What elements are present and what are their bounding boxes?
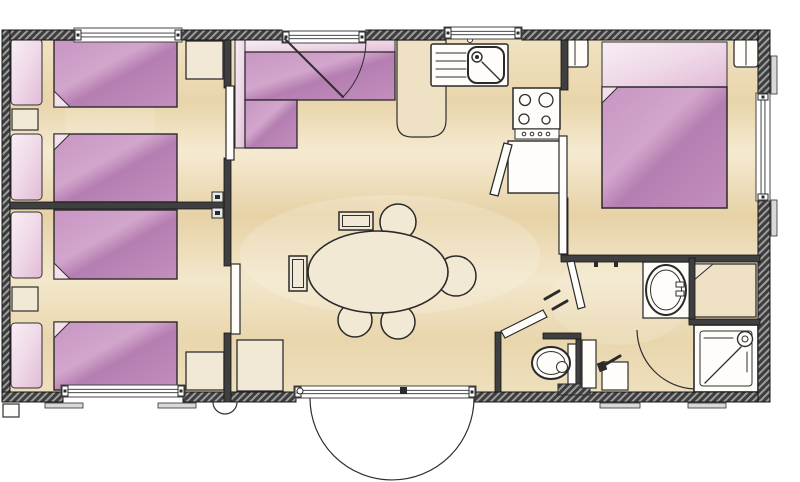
hob-burner-4 [542,116,550,124]
washbasin [646,265,686,315]
door-living-top-cap-dot-1 [361,36,364,39]
window-bedroom1-cap-dot-0 [77,34,80,37]
wall-bedrooms-living-top [224,40,231,88]
shower-head [738,332,753,347]
sliding-door-bedroom1 [226,86,234,160]
hob-knob-strip [515,129,559,139]
wall-wc-left [495,332,501,392]
window-bedroom1 [74,28,182,42]
sill-bottom-2 [158,403,196,408]
wall-bathroom-divider [689,258,695,322]
sill-bottom-3 [600,403,640,408]
hob-burner-1 [520,95,531,106]
window-kitchen [444,27,522,39]
window-kitchen-cap-dot-1 [517,32,520,35]
bed-single-4 [54,322,177,390]
bed-single-3-pillow [11,212,42,278]
dining-table [308,231,448,313]
sofa-backrest-left [235,40,245,148]
window-master-cap-dot-1 [762,196,765,199]
sliding-door-master [559,136,567,254]
nightstand-bedroom2 [12,287,38,311]
wall-right-top [758,30,770,93]
wardrobe-bedroom1 [186,41,223,79]
window-bedroom1-cap-dot-1 [177,34,180,37]
door-latch-bedroom1-dot [215,195,220,199]
patio-door-arc [310,398,474,480]
wall-bottom-1 [2,392,63,402]
floor-plan-drawing [0,0,800,482]
sofa-chaise [245,100,297,148]
wall-bottom-4 [474,392,758,402]
patio-door-handle [297,388,303,394]
wardrobe-bedroom2 [186,352,224,390]
bed-single-4-pillow [11,323,42,388]
wall-top-2 [180,30,282,40]
wall-top-4 [522,30,758,40]
door-living-top [282,31,366,43]
bed-single-1-pillow [11,39,42,105]
wall-top-3 [366,30,446,40]
hob-burner-3 [519,114,529,124]
window-master [756,93,770,201]
bed-single-1 [54,40,177,107]
bed-single-3 [54,210,177,279]
window-master-cap-dot-0 [762,96,765,99]
patio-door-latch [400,387,407,394]
sill-bottom-4 [688,403,726,408]
wall-bottom-2 [183,392,224,402]
hinge-mark-1 [594,262,598,267]
patio-door [294,386,476,398]
wardrobe-living [237,340,283,391]
wall-bedroom-divider [10,202,224,209]
kitchen-cabinet [508,141,561,193]
wall-bedrooms-living-mid [224,158,231,266]
wall-wc-top [543,333,581,339]
door-latch-bedroom2-dot [215,211,220,215]
washbasin-tap-2 [676,291,684,296]
patio-door-cap-dot-1 [471,391,474,394]
window-kitchen-cap-dot-0 [447,32,450,35]
toilet-flush [557,362,568,373]
sink-faucet-dot [475,55,479,59]
bed-single-2 [54,134,177,202]
sliding-door-bedroom2 [231,264,240,334]
wall-bottom-3 [231,392,296,402]
master-bed-pillows [602,42,727,87]
master-bed [602,87,727,208]
hob-burner-2 [539,93,553,107]
sill-bottom-1 [45,403,83,408]
sink-bowl [468,47,504,83]
wall-kitchen-master-top [561,40,568,90]
sofa-seat [245,52,395,100]
sill-right-2 [771,200,777,236]
wall-left [2,30,10,402]
toilet-cistern [582,340,596,388]
wall-top-1 [2,30,76,40]
window-bedroom2-cap-dot-0 [64,390,67,393]
dining-chair-left [289,256,307,291]
sill-right-1 [771,56,777,94]
hinge-mark-2 [614,262,618,267]
nightstand-bedroom1 [12,109,38,130]
bed-single-2-pillow [11,134,42,200]
washbasin-tap-1 [676,282,684,287]
wall-bedrooms-living-bottom [224,333,231,402]
wall-right-bottom [758,201,770,402]
wall-bathroom-top [561,255,760,262]
dining-chair-top [339,212,373,230]
entry-step [3,404,19,417]
wall-shower-top [689,319,760,325]
window-bedroom2 [61,385,185,397]
service-door-arc [213,402,237,414]
floor-plan-page [0,0,800,482]
window-bedroom2-cap-dot-1 [180,390,183,393]
